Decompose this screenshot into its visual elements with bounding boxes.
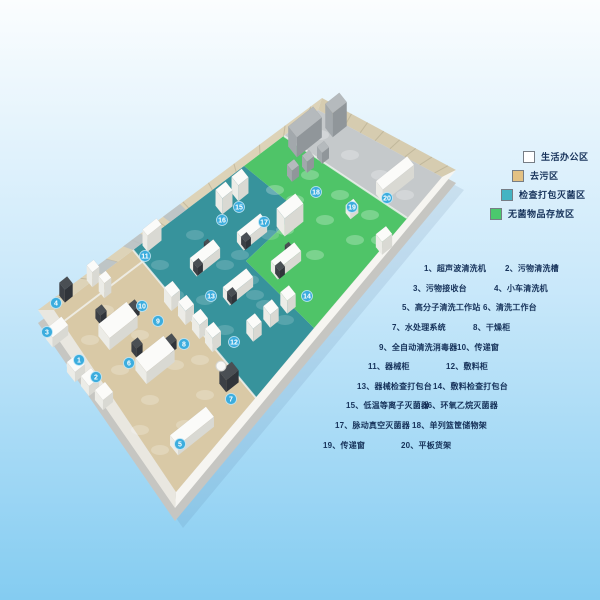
light-spot: [131, 330, 149, 340]
light-spot: [141, 395, 159, 405]
marker-number: 11: [141, 253, 149, 260]
marker-badge-11: 11: [140, 251, 151, 262]
marker-badge-20: 20: [382, 193, 393, 204]
light-spot: [331, 190, 349, 200]
marker-number: 9: [156, 318, 160, 325]
marker-number: 18: [312, 189, 320, 196]
marker-badge-16: 16: [217, 215, 228, 226]
floorplan-scene: 1234567891011121314151617181920: [38, 93, 464, 528]
light-spot: [186, 230, 204, 240]
marker-badge-9: 9: [153, 316, 164, 327]
marker-number: 1: [77, 357, 81, 364]
facility-floorplan-illustration: 1234567891011121314151617181920: [0, 0, 600, 600]
light-spot: [266, 185, 284, 195]
water-tank-sphere: [216, 361, 226, 371]
marker-badge-5: 5: [175, 439, 186, 450]
light-spot: [301, 170, 319, 180]
marker-number: 2: [94, 374, 98, 381]
marker-badge-8: 8: [179, 339, 190, 350]
marker-number: 12: [230, 339, 238, 346]
marker-badge-7: 7: [226, 394, 237, 405]
light-spot: [346, 235, 364, 245]
marker-number: 19: [348, 204, 356, 211]
marker-badge-10: 10: [137, 301, 148, 312]
marker-badge-17: 17: [259, 217, 270, 228]
marker-badge-3: 3: [42, 327, 53, 338]
light-spot: [216, 260, 234, 270]
marker-badge-1: 1: [74, 355, 85, 366]
light-spot: [306, 250, 324, 260]
marker-badge-15: 15: [234, 202, 245, 213]
marker-badge-4: 4: [51, 298, 62, 309]
marker-number: 3: [45, 329, 49, 336]
marker-badge-18: 18: [311, 187, 322, 198]
light-spot: [361, 210, 379, 220]
marker-number: 17: [260, 219, 268, 226]
marker-number: 6: [127, 360, 131, 367]
light-spot: [396, 190, 414, 200]
light-spot: [131, 425, 149, 435]
light-spot: [316, 215, 334, 225]
light-spot: [81, 335, 99, 345]
light-spot: [246, 290, 264, 300]
marker-number: 5: [178, 441, 182, 448]
marker-number: 14: [303, 293, 311, 300]
marker-badge-12: 12: [229, 337, 240, 348]
marker-number: 15: [235, 204, 243, 211]
light-spot: [196, 390, 214, 400]
marker-badge-19: 19: [347, 202, 358, 213]
marker-number: 20: [383, 195, 391, 202]
marker-number: 13: [207, 293, 215, 300]
app-canvas: 1234567891011121314151617181920 生活办公区去污区…: [0, 0, 600, 600]
marker-number: 8: [182, 341, 186, 348]
marker-number: 16: [218, 217, 226, 224]
light-spot: [231, 250, 249, 260]
marker-badge-2: 2: [91, 372, 102, 383]
marker-badge-6: 6: [124, 358, 135, 369]
marker-number: 10: [138, 303, 146, 310]
marker-badge-14: 14: [302, 291, 313, 302]
marker-number: 4: [54, 300, 58, 307]
light-spot: [151, 445, 169, 455]
light-spot: [191, 355, 209, 365]
light-spot: [341, 150, 359, 160]
marker-badge-13: 13: [206, 291, 217, 302]
light-spot: [151, 260, 169, 270]
marker-number: 7: [229, 396, 233, 403]
